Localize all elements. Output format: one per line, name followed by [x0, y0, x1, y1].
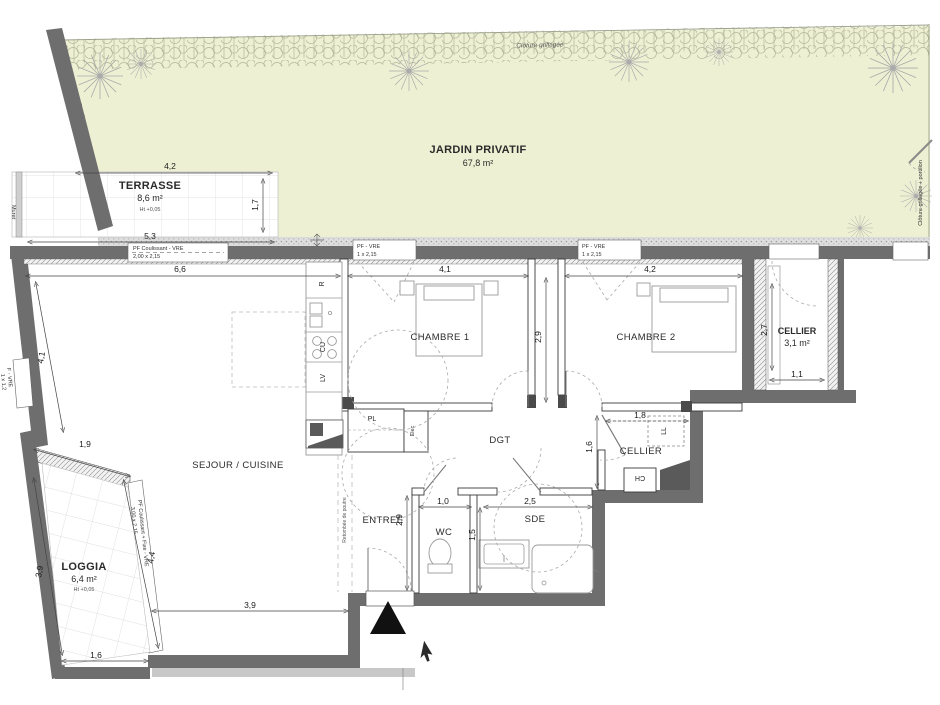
wall-sde-top — [540, 488, 592, 495]
garden-area-value: 67,8 m² — [463, 158, 494, 168]
dim: 4,2 — [164, 161, 176, 171]
dim: 1,9 — [79, 439, 91, 449]
cellier-ext-area: 3,1 m² — [784, 338, 810, 348]
chambre1-window-label-1: PF - VRE — [357, 244, 381, 250]
wall-shadow — [152, 668, 415, 677]
sde-label: SDE — [525, 514, 546, 525]
wall-wc-sde — [470, 492, 477, 593]
fridge-label: R — [319, 281, 326, 286]
low-wall-label: Muret — [10, 205, 16, 220]
dim: 2,9 — [394, 514, 404, 526]
terrace: Muret TERRASSE 8,6 m² Ht +0,05 — [10, 172, 278, 237]
pillow — [424, 286, 474, 300]
sink-bowl — [310, 303, 322, 314]
terrace-label: TERRASSE — [119, 180, 181, 192]
nightstand — [400, 281, 414, 295]
hob-label: CU — [320, 342, 327, 352]
floor-plan-page: Clôture grillagée Clôture grillagée + po… — [0, 0, 940, 705]
floor-plan: Clôture grillagée Clôture grillagée + po… — [0, 0, 940, 705]
dim: 1,6 — [584, 441, 594, 453]
chambre1-window-label-2: 1 x 2,15 — [357, 252, 377, 258]
dim: 3,9 — [244, 600, 256, 610]
garden-label: JARDIN PRIVATIF — [430, 144, 527, 156]
sejour-bottom-wall — [148, 655, 360, 668]
dishwasher-label: LV — [320, 374, 327, 382]
dim: 4,1 — [439, 264, 451, 274]
chambre2-label: CHAMBRE 2 — [616, 332, 675, 343]
loggia-height-note: Ht +0,05 — [74, 587, 95, 593]
dim: 5,3 — [144, 231, 156, 241]
toilet-bowl — [429, 539, 451, 567]
fence-top-label: Clôture grillagée — [516, 41, 564, 49]
cellier-ext-label: CELLIER — [778, 326, 817, 336]
chambre2-window-label-2: 1 x 2,15 — [582, 252, 602, 258]
wall-dgt-cellier — [598, 450, 605, 490]
closet-pl: PL Elec — [348, 409, 428, 452]
sejour-label: SEJOUR / CUISINE — [192, 460, 283, 471]
cellar-door — [769, 244, 819, 259]
nightstand — [637, 283, 650, 296]
chambre2-window-label-1: PF - VRE — [582, 244, 606, 250]
post — [342, 397, 354, 409]
terrace-door-label-1: PF Coulissant - VRE — [133, 246, 184, 252]
wc-fixtures — [428, 539, 452, 573]
shower-tray — [532, 545, 593, 593]
dim: 3,9 — [33, 565, 45, 579]
sde-east-wall — [592, 500, 605, 606]
dgt-label: DGT — [489, 435, 510, 446]
boiler-label: CH — [635, 474, 645, 481]
wall-couloir-chambre2 — [558, 259, 565, 395]
dim: 4,1 — [35, 351, 47, 365]
sejour-window-label-2: 1 x 1,2 — [0, 374, 7, 391]
wall-chambre1-couloir — [528, 259, 535, 395]
wall-wc-top-b — [458, 488, 497, 495]
washer-label: LL — [661, 427, 668, 435]
nightstand — [484, 281, 498, 295]
dim: 1,8 — [634, 410, 646, 420]
beam-label: Retombée de poutre — [342, 497, 348, 543]
dim: 1,6 — [90, 650, 102, 660]
dim: 1,0 — [437, 496, 449, 506]
chambre1-label: CHAMBRE 1 — [410, 332, 469, 343]
garden-gate — [893, 242, 928, 260]
dim: 2,5 — [524, 496, 536, 506]
pl-label: PL — [368, 416, 377, 423]
dim: 4,2 — [644, 264, 656, 274]
wall-wc-top-a — [412, 488, 424, 495]
entrance-door — [366, 591, 414, 606]
cellar-int-east-wall — [690, 403, 703, 503]
dim: 2,7 — [759, 324, 769, 336]
toilet-tank — [428, 564, 452, 573]
terrace-area-value: 8,6 m² — [137, 193, 163, 203]
cellar-east-insulation — [828, 259, 838, 390]
sink-bowl — [310, 316, 322, 327]
wc-label: WC — [436, 527, 453, 538]
wall-entree-wc — [412, 492, 419, 593]
cellar-bottom-wall — [690, 390, 856, 403]
terrace-door-label-2: 2,00 x 2,15 — [133, 254, 160, 260]
dim: 1,7 — [250, 199, 260, 211]
loggia-area-value: 6,4 m² — [71, 574, 97, 584]
dim: 6,6 — [174, 264, 186, 274]
dim: 2,9 — [533, 331, 543, 343]
dim: 1,1 — [791, 369, 803, 379]
step-wall — [348, 600, 360, 668]
wall-chambre2-dgt — [602, 403, 742, 411]
duct-core — [310, 423, 323, 436]
cellier-int-label: CELLIER — [620, 446, 662, 457]
fence-right-label: Clôture grillagée + portillon — [918, 160, 924, 226]
post — [681, 401, 692, 412]
pillow — [660, 288, 728, 302]
dim: 4,4 — [145, 551, 157, 565]
loggia-bottom-wall — [52, 667, 150, 679]
terrace-height-note: Ht +0,05 — [140, 207, 161, 213]
loggia-label: LOGGIA — [61, 561, 106, 573]
dim: 1,5 — [467, 529, 477, 541]
